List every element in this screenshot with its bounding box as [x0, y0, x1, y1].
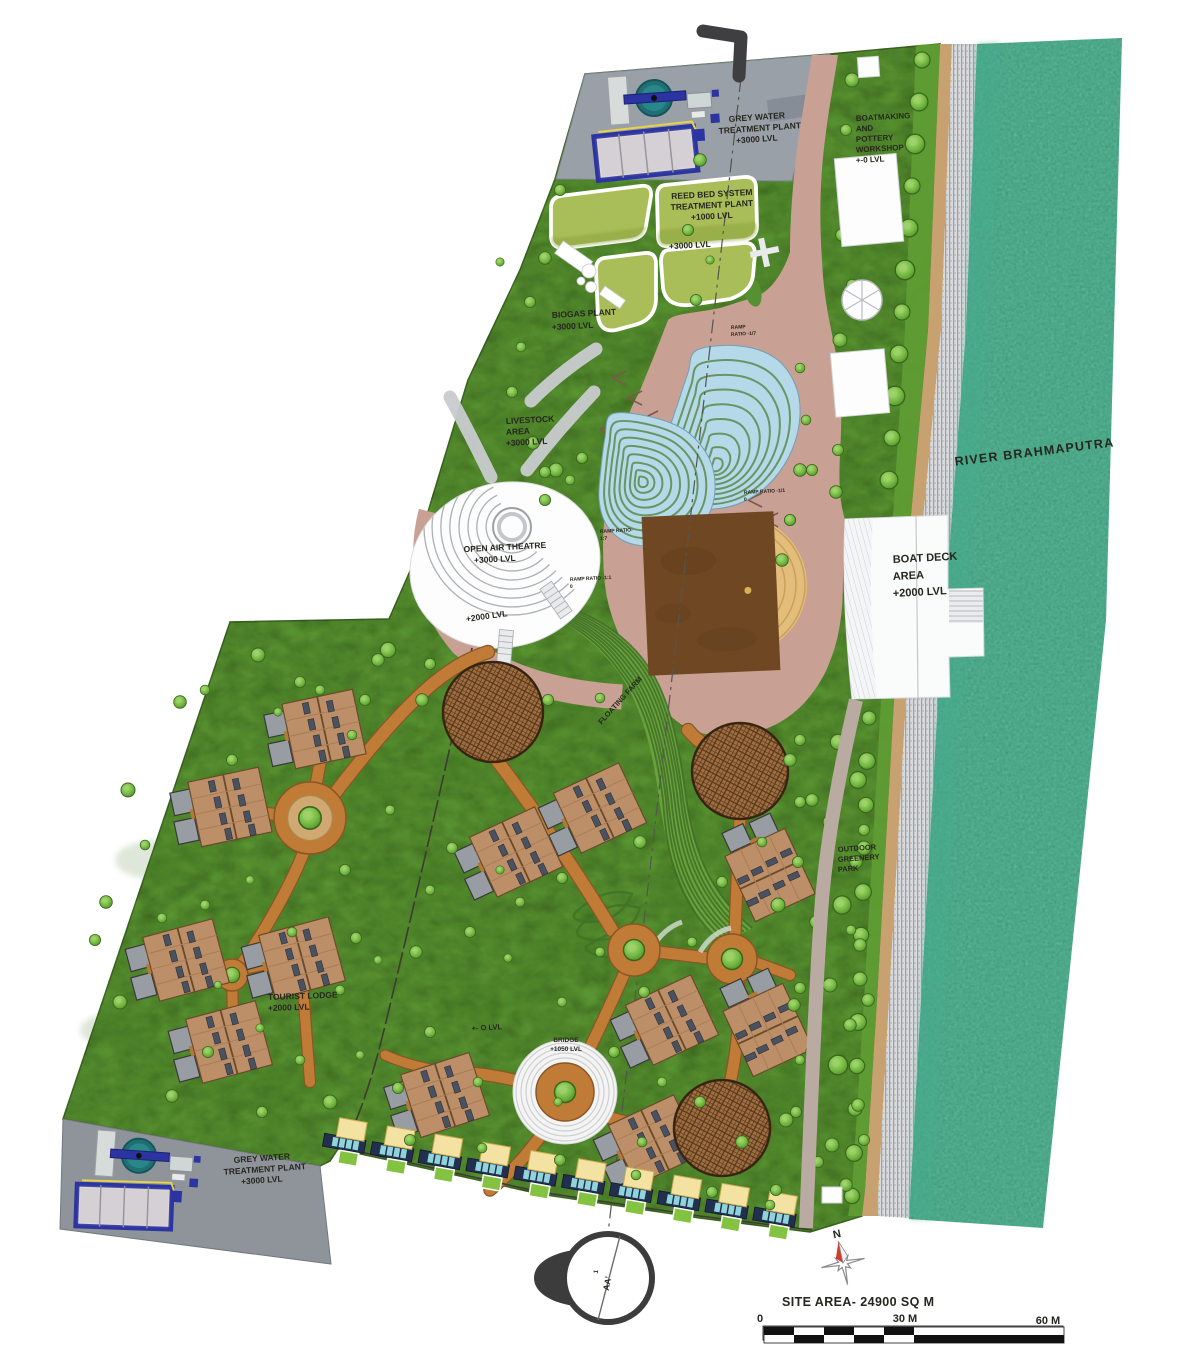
svg-text:0: 0 — [744, 497, 747, 503]
svg-text:+1050 LVL: +1050 LVL — [550, 1046, 582, 1053]
svg-text:SITE AREA- 24900 SQ M: SITE AREA- 24900 SQ M — [782, 1295, 934, 1309]
svg-text:RAMP: RAMP — [731, 324, 747, 331]
svg-text:AREA: AREA — [506, 426, 531, 437]
svg-text:0: 0 — [757, 1313, 763, 1325]
svg-text:0: 0 — [570, 584, 573, 590]
svg-text:1:7: 1:7 — [600, 536, 608, 542]
svg-text:AREA: AREA — [893, 569, 925, 583]
svg-text:30 M: 30 M — [893, 1313, 917, 1325]
svg-text:60 M: 60 M — [1036, 1315, 1060, 1327]
svg-text:+- O LVL: +- O LVL — [471, 1022, 502, 1033]
svg-text:AND: AND — [856, 124, 874, 134]
svg-text:BRIDGE: BRIDGE — [553, 1037, 579, 1044]
svg-text:PARK: PARK — [838, 864, 860, 874]
svg-text:+-0 LVL: +-0 LVL — [856, 155, 885, 165]
svg-text:+2000 LVL: +2000 LVL — [268, 1002, 310, 1013]
